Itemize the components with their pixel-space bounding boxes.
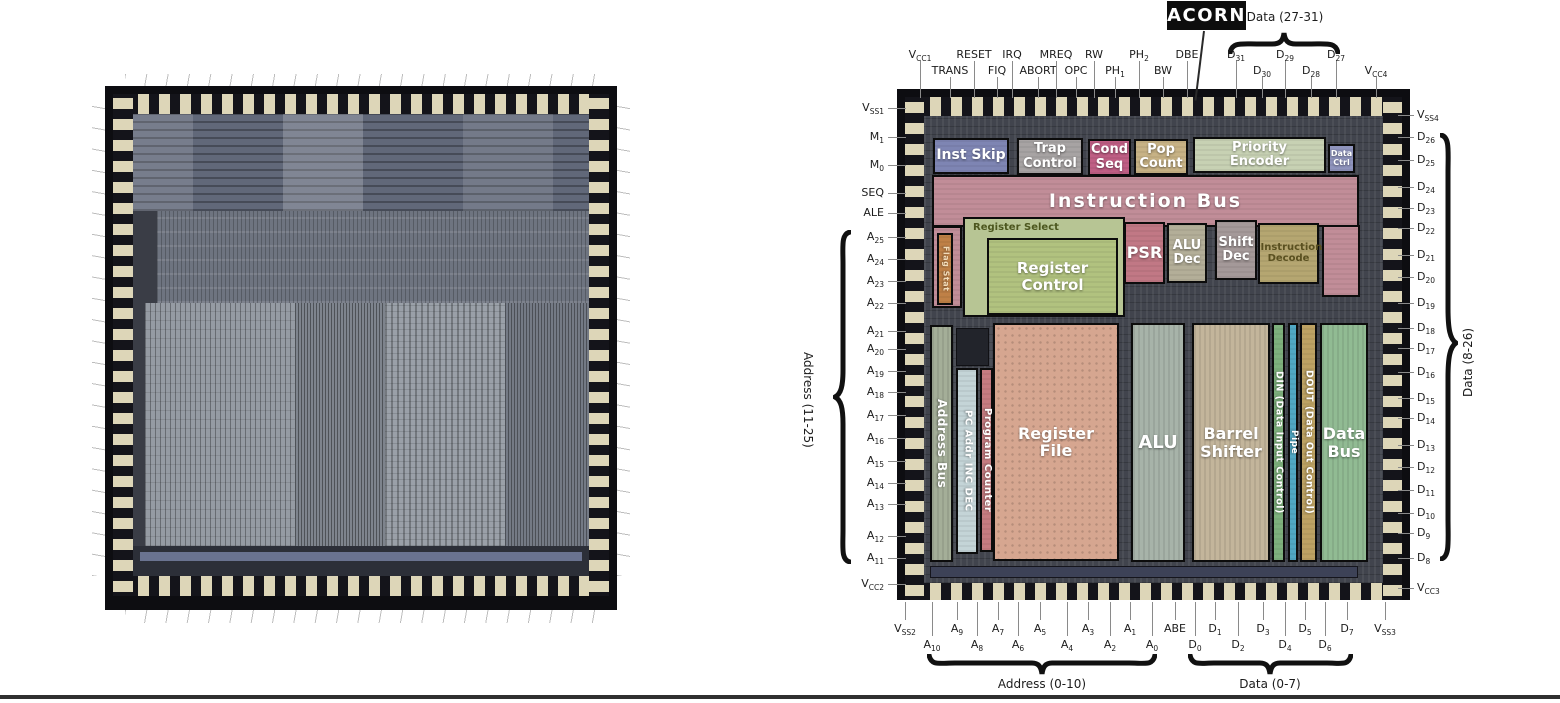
pin-leader-line xyxy=(1076,77,1077,98)
pin-leader-line xyxy=(888,193,906,194)
right-die-pads-left xyxy=(905,97,924,600)
pin-label-right-d21: D21 xyxy=(1417,248,1481,263)
pin-label-right-d10: D10 xyxy=(1417,506,1481,521)
pin-leader-line xyxy=(1088,602,1089,620)
pin-leader-line xyxy=(1398,445,1414,446)
pin-label-left-a25: A25 xyxy=(820,230,884,245)
left-die-pads-bottom xyxy=(113,576,609,596)
block-program-counter: Program Counter xyxy=(980,368,993,552)
left-die-region-top xyxy=(133,114,589,211)
pin-leader-line xyxy=(888,483,906,484)
pin-label-right-d13: D13 xyxy=(1417,438,1481,453)
left-die-bond-wires-bottom xyxy=(125,610,595,623)
pin-label-right-d16: D16 xyxy=(1417,365,1481,380)
pin-label-left-a17: A17 xyxy=(820,408,884,423)
pin-leader-line xyxy=(1336,61,1337,98)
pin-leader-line xyxy=(1262,77,1263,98)
pin-label-right-d12: D12 xyxy=(1417,460,1481,475)
pin-leader-line xyxy=(1040,602,1041,620)
pin-label-left-a11: A11 xyxy=(820,551,884,566)
brace-label-data-27-31: Data (27-31) xyxy=(1230,10,1340,24)
pin-leader-line xyxy=(1305,602,1306,620)
pin-leader-line xyxy=(888,438,906,439)
block-register-file: Register File xyxy=(993,323,1119,561)
pin-leader-line xyxy=(1311,77,1312,98)
block-instruction-bus-right-strip xyxy=(1322,225,1360,297)
block-priority-encoder: Priority Encoder xyxy=(1193,137,1326,173)
block-data-ctrl: Data Ctrl xyxy=(1328,144,1355,173)
pin-label-right-vss4: VSS4 xyxy=(1417,108,1481,123)
pin-label-left-a20: A20 xyxy=(820,342,884,357)
block-din: DIN (Data Input Control) xyxy=(1272,323,1285,562)
left-die-bond-wires-right xyxy=(617,106,630,576)
pin-label-left-m1: M1 xyxy=(820,130,884,145)
pin-label-left-a22: A22 xyxy=(820,296,884,311)
page-bottom-rule xyxy=(0,695,1560,699)
pin-leader-line xyxy=(1398,303,1414,304)
brace-label-data-0-7: Data (0-7) xyxy=(1195,677,1345,691)
block-alu: ALU xyxy=(1131,323,1185,562)
left-die-bond-wires-left xyxy=(92,106,105,576)
pin-leader-line xyxy=(1376,77,1377,98)
pin-label-left-vss1: VSS1 xyxy=(820,101,884,116)
pin-label-right-d9: D9 xyxy=(1417,526,1481,541)
pin-label-left-a14: A14 xyxy=(820,476,884,491)
pin-leader-line xyxy=(1398,533,1414,534)
block-trap-control: Trap Control xyxy=(1017,138,1083,175)
pin-leader-line xyxy=(888,461,906,462)
left-die-region-array4 xyxy=(505,303,589,546)
right-die-pads-bottom xyxy=(905,583,1402,600)
pin-leader-line xyxy=(1398,255,1414,256)
pin-leader-line xyxy=(1398,160,1414,161)
block-alu-dec: ALU Dec xyxy=(1167,223,1207,283)
pin-label-bottom-d6: D6 xyxy=(1293,638,1357,653)
pin-leader-line xyxy=(1187,61,1188,98)
pin-leader-line xyxy=(957,602,958,620)
left-die-pads-right xyxy=(589,94,609,596)
pin-leader-line xyxy=(888,392,906,393)
pin-leader-line xyxy=(888,558,906,559)
pin-label-left-a19: A19 xyxy=(820,364,884,379)
pin-label-right-d22: D22 xyxy=(1417,221,1481,236)
brace-label-address-11-25: Address (11-25) xyxy=(801,327,815,472)
left-die-region-array3 xyxy=(385,303,505,546)
left-die-region-array2 xyxy=(295,303,385,546)
pin-leader-line xyxy=(1398,277,1414,278)
pin-leader-line xyxy=(888,213,906,214)
block-cond-seq: Cond Seq xyxy=(1088,139,1131,176)
pin-leader-line xyxy=(1398,490,1414,491)
pin-leader-line xyxy=(1398,208,1414,209)
pin-label-left-a15: A15 xyxy=(820,454,884,469)
pin-label-top-bw: BW xyxy=(1131,64,1195,77)
pin-label-left-a18: A18 xyxy=(820,385,884,400)
right-die-bus-bar xyxy=(930,566,1358,578)
block-pipe: Pipe xyxy=(1288,323,1298,562)
pin-leader-line xyxy=(888,331,906,332)
pin-leader-line xyxy=(888,237,906,238)
pin-label-right-d14: D14 xyxy=(1417,411,1481,426)
block-inst-skip: Inst Skip xyxy=(933,138,1009,174)
block-barrel-shifter: Barrel Shifter xyxy=(1192,323,1270,562)
pin-label-left-a23: A23 xyxy=(820,274,884,289)
pin-label-right-d17: D17 xyxy=(1417,341,1481,356)
pin-leader-line xyxy=(1163,77,1164,98)
pin-leader-line xyxy=(1398,398,1414,399)
pin-label-right-d25: D25 xyxy=(1417,153,1481,168)
pin-leader-line xyxy=(1398,418,1414,419)
brace-data-0-7 xyxy=(1188,654,1353,676)
block-dout: DOUT (Data Out Control) xyxy=(1300,323,1317,562)
pin-label-left-a12: A12 xyxy=(820,529,884,544)
pin-label-bottom-vss3: VSS3 xyxy=(1353,622,1417,637)
block-pop-count: Pop Count xyxy=(1134,139,1188,175)
pin-leader-line xyxy=(888,137,906,138)
register-select-label: Register Select xyxy=(973,222,1059,233)
brace-label-data-8-26: Data (8-26) xyxy=(1461,297,1475,427)
pin-leader-line xyxy=(1398,588,1414,589)
pin-label-left-a24: A24 xyxy=(820,252,884,267)
pin-label-left-a16: A16 xyxy=(820,431,884,446)
block-pc-addr-inc-dec: PC Addr INC DEC xyxy=(956,368,978,554)
left-die-pads-left xyxy=(113,94,133,596)
block-instruction-decode: Instruction Decode xyxy=(1258,223,1319,284)
pin-leader-line xyxy=(997,77,998,98)
left-die-region-bottom-strip xyxy=(133,546,589,576)
left-die-photo xyxy=(105,86,617,610)
left-die-bond-wires-top xyxy=(125,74,595,86)
block-register-control: Register Control xyxy=(987,238,1118,315)
pin-leader-line xyxy=(1038,77,1039,98)
pin-label-right-d8: D8 xyxy=(1417,551,1481,566)
brace-label-address-0-10: Address (0-10) xyxy=(967,677,1117,691)
pin-label-right-d19: D19 xyxy=(1417,296,1481,311)
pin-label-right-d20: D20 xyxy=(1417,270,1481,285)
pin-leader-line xyxy=(1398,513,1414,514)
left-die-region-array1 xyxy=(145,303,295,546)
pin-leader-line xyxy=(1398,348,1414,349)
pin-leader-line xyxy=(1263,602,1264,620)
pin-leader-line xyxy=(1115,77,1116,98)
pin-leader-line xyxy=(1130,602,1131,620)
brace-address-0-10 xyxy=(927,654,1157,676)
left-die-region-middle xyxy=(133,211,589,303)
pin-leader-line xyxy=(1398,115,1414,116)
pin-label-right-d18: D18 xyxy=(1417,321,1481,336)
pin-leader-line xyxy=(888,108,906,109)
block-flag-stat: Flag Stat xyxy=(937,233,953,305)
pin-leader-line xyxy=(888,536,906,537)
pin-leader-line xyxy=(950,77,951,98)
annotated-arm-die-figure: Instruction Bus Inst Skip Trap Control C… xyxy=(0,0,1560,703)
pin-leader-line xyxy=(888,349,906,350)
pin-label-right-d24: D24 xyxy=(1417,180,1481,195)
pin-leader-line xyxy=(888,259,906,260)
pin-leader-line xyxy=(1398,558,1414,559)
pin-label-left-a13: A13 xyxy=(820,497,884,512)
pin-leader-line xyxy=(1385,602,1386,620)
pin-label-left-vcc2: VCC2 xyxy=(820,577,884,592)
pin-leader-line xyxy=(888,415,906,416)
left-die-circuitry xyxy=(133,114,589,576)
block-psr: PSR xyxy=(1124,222,1165,284)
right-die-pads-top xyxy=(905,97,1402,116)
pin-leader-line xyxy=(1215,602,1216,620)
pin-label-right-d11: D11 xyxy=(1417,483,1481,498)
pin-leader-line xyxy=(1398,228,1414,229)
pin-leader-line xyxy=(1398,187,1414,188)
left-die-pads-top xyxy=(113,94,609,114)
pin-leader-line xyxy=(888,584,906,585)
pin-leader-line xyxy=(888,504,906,505)
pin-leader-line xyxy=(905,602,906,620)
pin-leader-line xyxy=(1398,372,1414,373)
pin-leader-line xyxy=(1175,602,1176,620)
pin-label-right-vcc3: VCC3 xyxy=(1417,581,1481,596)
pin-leader-line xyxy=(1347,602,1348,620)
block-data-bus: Data Bus xyxy=(1320,323,1368,562)
pin-label-right-d15: D15 xyxy=(1417,391,1481,406)
pin-label-right-d23: D23 xyxy=(1417,201,1481,216)
pin-leader-line xyxy=(1398,137,1414,138)
block-unlabeled-logic xyxy=(956,328,989,366)
pin-leader-line xyxy=(888,281,906,282)
pin-leader-line xyxy=(888,303,906,304)
left-die-bus-bar xyxy=(140,552,582,561)
pin-leader-line xyxy=(888,371,906,372)
pin-leader-line xyxy=(888,165,906,166)
pin-label-left-seq: SEQ xyxy=(820,186,884,199)
pin-leader-line xyxy=(1398,467,1414,468)
pin-label-left-a21: A21 xyxy=(820,324,884,339)
block-address-bus: Address Bus xyxy=(930,325,953,562)
pin-label-left-ale: ALE xyxy=(820,206,884,219)
block-shift-dec: Shift Dec xyxy=(1215,220,1257,280)
pin-leader-line xyxy=(998,602,999,620)
pin-label-right-d26: D26 xyxy=(1417,130,1481,145)
pin-label-left-m0: M0 xyxy=(820,158,884,173)
pin-leader-line xyxy=(1398,328,1414,329)
